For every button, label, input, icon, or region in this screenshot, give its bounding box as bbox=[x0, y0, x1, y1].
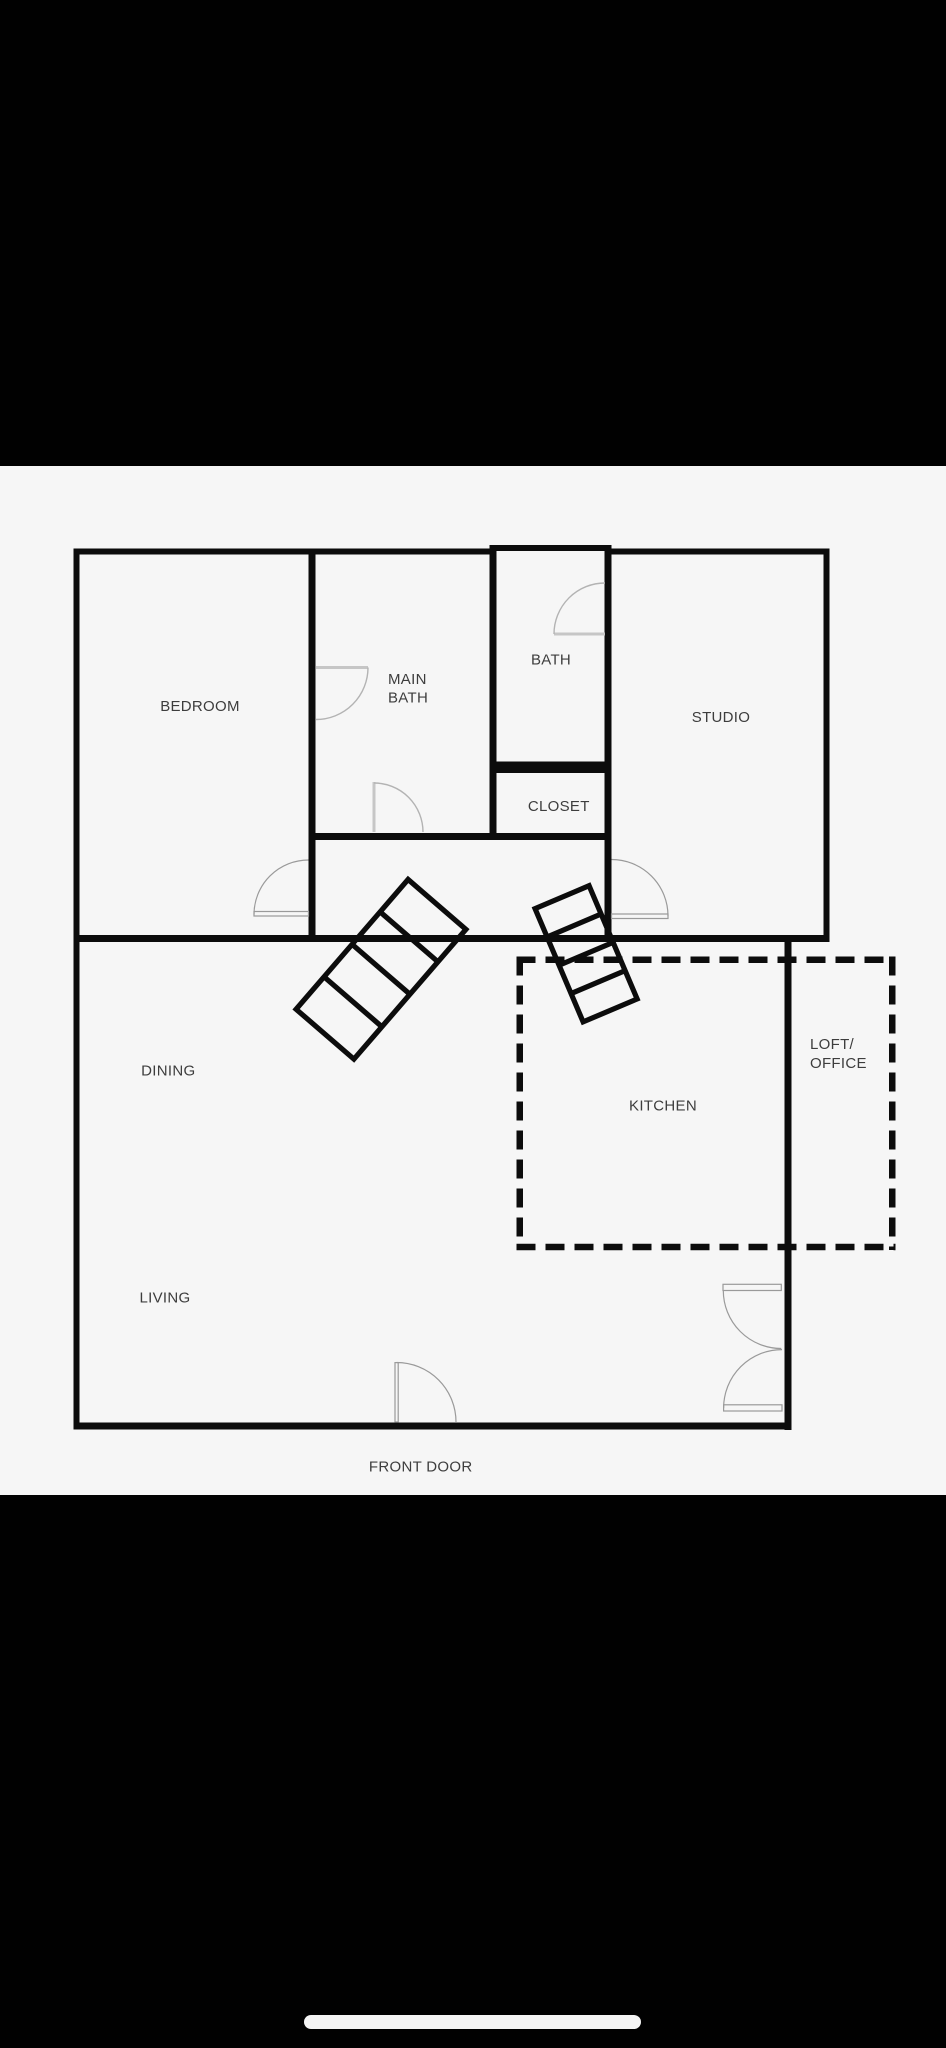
svg-text:FRONT DOOR: FRONT DOOR bbox=[369, 1459, 473, 1476]
svg-text:DINING: DINING bbox=[141, 1062, 195, 1079]
svg-text:LOFT/: LOFT/ bbox=[810, 1036, 855, 1053]
svg-text:STUDIO: STUDIO bbox=[692, 709, 750, 726]
svg-text:LIVING: LIVING bbox=[140, 1290, 191, 1307]
svg-text:KITCHEN: KITCHEN bbox=[629, 1098, 697, 1115]
svg-text:BATH: BATH bbox=[388, 690, 428, 707]
svg-text:CLOSET: CLOSET bbox=[528, 798, 590, 815]
svg-text:OFFICE: OFFICE bbox=[810, 1055, 867, 1072]
svg-text:BATH: BATH bbox=[531, 651, 571, 668]
svg-text:MAIN: MAIN bbox=[388, 671, 427, 688]
svg-text:BEDROOM: BEDROOM bbox=[160, 698, 240, 715]
